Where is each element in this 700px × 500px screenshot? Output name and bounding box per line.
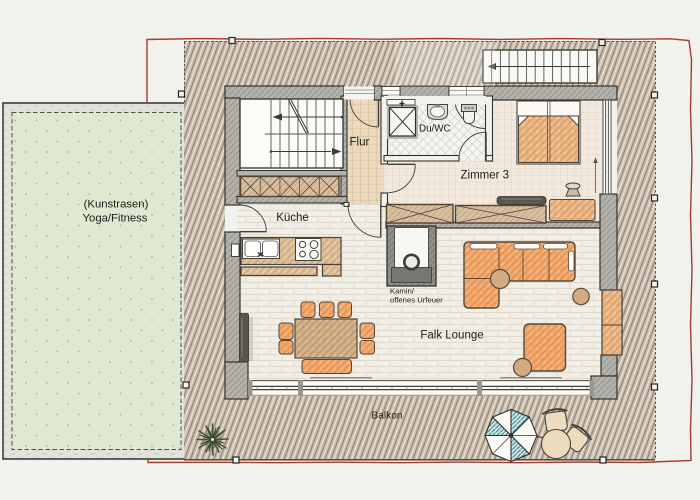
svg-text:Zimmer 3: Zimmer 3 xyxy=(461,170,510,182)
svg-text:Yoga/Fitness: Yoga/Fitness xyxy=(83,213,148,225)
svg-text:Du/WC: Du/WC xyxy=(419,124,451,135)
svg-text:Balkon: Balkon xyxy=(371,411,402,422)
svg-text:Falk Lounge: Falk Lounge xyxy=(420,330,483,342)
svg-text:Kamin/: Kamin/ xyxy=(390,287,415,296)
svg-text:offenes Urfeuer: offenes Urfeuer xyxy=(390,296,443,305)
svg-text:Flur: Flur xyxy=(350,137,370,149)
svg-text:Küche: Küche xyxy=(276,212,309,224)
svg-text:(Kunstrasen): (Kunstrasen) xyxy=(84,199,149,211)
